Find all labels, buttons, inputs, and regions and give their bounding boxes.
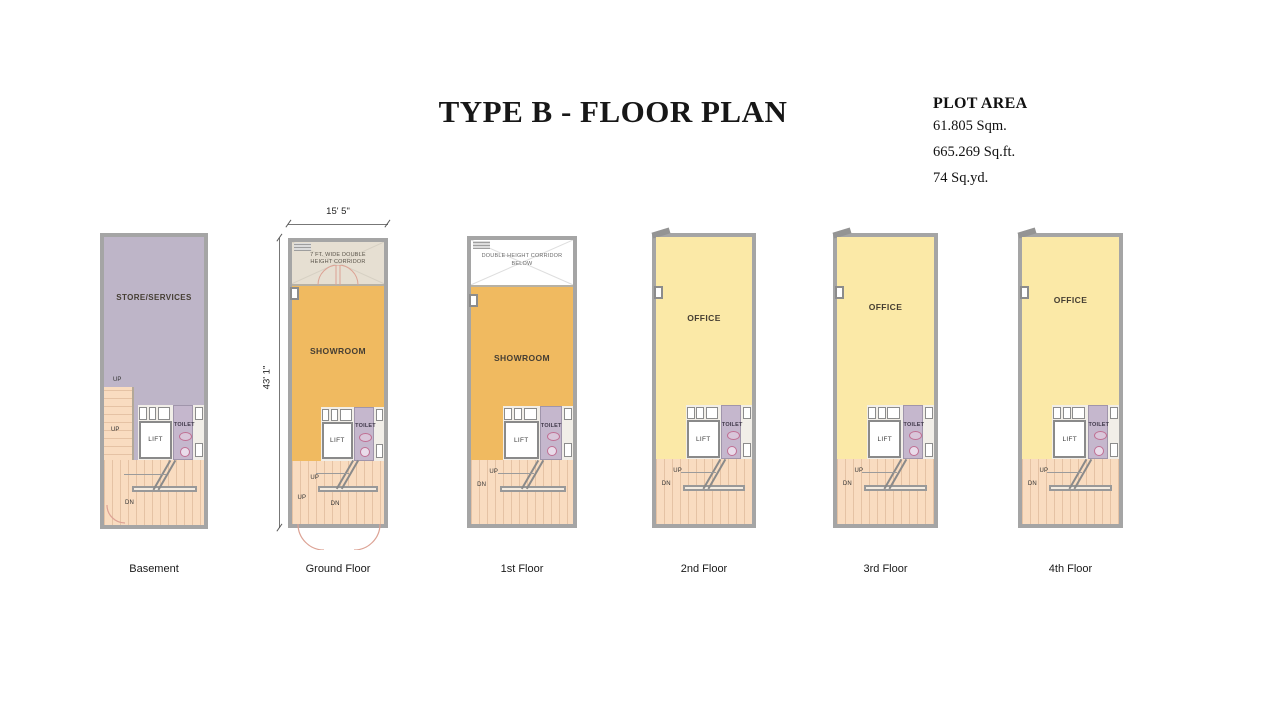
toilet-label: TOILET <box>1089 422 1108 428</box>
stair-landing <box>318 486 378 492</box>
shaft-box <box>149 407 157 420</box>
up-label: UP <box>111 427 119 433</box>
window-marker <box>469 294 478 307</box>
lift-label: LIFT <box>1063 436 1078 443</box>
width-dimension-line <box>288 224 388 225</box>
down-label: DN <box>1028 481 1037 487</box>
toilet-label: TOILET <box>541 423 561 429</box>
shaft-box <box>158 407 171 420</box>
floor-plan-basement: STORE/SERVICES UP UP LIFT TOILET <box>100 233 208 529</box>
void-label: DOUBLE HEIGHT CORRIDOR BELOW <box>481 253 563 268</box>
direction-arrow <box>316 473 349 474</box>
plot-area-sqyd: 74 Sq.yd. <box>933 165 1027 191</box>
service-core: LIFT TOILET <box>503 406 573 460</box>
lift-room: LIFT <box>868 420 901 458</box>
double-height-void: DOUBLE HEIGHT CORRIDOR BELOW <box>471 240 573 287</box>
toilet-room: TOILET <box>1088 405 1109 460</box>
width-dimension-label: 15' 5" <box>288 206 388 217</box>
wc-icon <box>179 432 192 441</box>
store-box <box>376 409 384 421</box>
stair-treads <box>837 459 934 524</box>
stair-treads <box>656 459 752 524</box>
wc-icon <box>909 431 922 440</box>
floor-name-third: 3rd Floor <box>833 563 938 575</box>
stair-landing <box>1049 485 1112 491</box>
direction-arrow <box>1047 472 1082 473</box>
staircase: UP UP DN <box>292 461 384 524</box>
lift-label: LIFT <box>514 437 529 444</box>
service-core: LIFT TOILET <box>321 407 384 461</box>
depth-dimension-line <box>279 238 280 528</box>
shaft-box <box>504 408 512 420</box>
shaft-box <box>1063 407 1071 420</box>
door-arc <box>106 504 126 524</box>
lift-room: LIFT <box>504 421 538 459</box>
direction-arrow <box>862 472 897 473</box>
plot-area-block: PLOT AREA 61.805 Sqm. 665.269 Sq.ft. 74 … <box>933 95 1027 191</box>
double-door-arc <box>316 265 360 285</box>
down-label: DN <box>843 481 852 487</box>
floor-plan-ground: 7 FT. WIDE DOUBLE HEIGHT CORRIDOR SHOWRO… <box>288 238 388 528</box>
service-core: LIFT TOILET <box>138 405 204 460</box>
lift-room: LIFT <box>687 420 719 458</box>
plot-area-sqft: 665.269 Sq.ft. <box>933 139 1027 165</box>
up-label: UP <box>673 468 682 474</box>
shaft-box <box>340 409 352 421</box>
store-box <box>376 444 384 458</box>
store-box <box>925 443 933 457</box>
room-label: SHOWROOM <box>292 346 384 356</box>
window-marker <box>290 287 299 300</box>
wc-icon <box>1094 431 1107 440</box>
shaft-box <box>139 407 147 420</box>
shaft-box <box>524 408 537 420</box>
staircase: UP DN <box>837 459 934 524</box>
store-box <box>1110 407 1118 420</box>
room-label: SHOWROOM <box>471 353 573 363</box>
floor-name-first: 1st Floor <box>467 563 577 575</box>
floor-name-ground: Ground Floor <box>288 563 388 575</box>
store-box <box>564 408 572 420</box>
stair-landing <box>864 485 927 491</box>
direction-arrow <box>124 474 166 475</box>
wc-icon <box>547 432 560 441</box>
wc-icon <box>359 433 372 442</box>
up-label: UP <box>489 469 498 475</box>
service-core: LIFT TOILET <box>1052 405 1119 460</box>
toilet-label: TOILET <box>904 422 923 428</box>
down-label: DN <box>662 481 671 487</box>
room-label: OFFICE <box>837 302 934 312</box>
entrance-corridor: 7 FT. WIDE DOUBLE HEIGHT CORRIDOR <box>292 242 384 286</box>
lift-room: LIFT <box>322 422 353 460</box>
window-marker <box>1020 286 1029 299</box>
floor-plan-first: DOUBLE HEIGHT CORRIDOR BELOW SHOWROOM LI… <box>467 236 577 528</box>
store-box <box>1110 443 1118 457</box>
store-box <box>743 443 751 457</box>
store-box <box>743 407 751 420</box>
toilet-room: TOILET <box>903 405 924 460</box>
stair-treads <box>471 460 573 524</box>
direction-arrow <box>681 472 716 473</box>
up-label: UP <box>854 468 863 474</box>
basin-icon <box>909 446 919 456</box>
shaft-box <box>687 407 695 420</box>
shaft-box <box>322 409 330 421</box>
staircase: UP DN <box>471 460 573 524</box>
shaft-box <box>331 409 339 421</box>
lift-label: LIFT <box>148 436 163 443</box>
shaft-box <box>706 407 719 420</box>
up-label: UP <box>310 475 319 481</box>
basin-icon <box>727 446 737 456</box>
stair-hatch-icon <box>473 241 490 249</box>
stair-landing <box>683 485 745 491</box>
stair-flight <box>104 387 134 463</box>
stair-hatch-icon <box>294 243 311 251</box>
shaft-box <box>1053 407 1061 420</box>
toilet-label: TOILET <box>174 422 192 428</box>
basin-icon <box>547 446 557 456</box>
down-label: DN <box>125 500 134 506</box>
service-core: LIFT TOILET <box>867 405 934 460</box>
room-label: STORE/SERVICES <box>104 293 204 302</box>
entry-door-arcs <box>292 524 392 550</box>
dimension-tick <box>384 220 390 228</box>
staircase: UP DN <box>656 459 752 524</box>
shaft-box <box>514 408 522 420</box>
shaft-box <box>1072 407 1085 420</box>
shaft-box <box>696 407 704 420</box>
floor-plan-fourth: OFFICE LIFT TOILET UP DN <box>1018 233 1123 528</box>
down-label: DN <box>477 482 486 488</box>
toilet-label: TOILET <box>722 422 741 428</box>
store-box <box>564 443 572 457</box>
lift-label: LIFT <box>330 437 345 444</box>
floor-plan-sheet: TYPE B - FLOOR PLAN PLOT AREA 61.805 Sqm… <box>0 0 1280 720</box>
page-title: TYPE B - FLOOR PLAN <box>418 94 808 130</box>
toilet-label: TOILET <box>355 423 373 429</box>
service-core: LIFT TOILET <box>686 405 752 460</box>
lift-room: LIFT <box>1053 420 1086 458</box>
depth-dimension-label: 43' 1" <box>262 358 273 398</box>
up-label: UP <box>1039 468 1048 474</box>
room-label: OFFICE <box>1022 295 1119 305</box>
staircase: DN <box>104 460 204 525</box>
basin-icon <box>180 447 190 457</box>
plot-area-sqm: 61.805 Sqm. <box>933 113 1027 139</box>
basin-icon <box>360 447 370 457</box>
toilet-room: TOILET <box>173 405 193 460</box>
store-box <box>925 407 933 420</box>
stair-landing <box>500 486 566 492</box>
staircase: UP DN <box>1022 459 1119 524</box>
direction-arrow <box>498 473 535 474</box>
floor-plan-second: OFFICE LIFT TOILET UP DN <box>652 233 756 528</box>
stair-treads <box>1022 459 1119 524</box>
window-marker <box>654 286 663 299</box>
plot-area-heading: PLOT AREA <box>933 95 1027 113</box>
floor-plan-third: OFFICE LIFT TOILET UP DN <box>833 233 938 528</box>
wc-icon <box>727 431 740 440</box>
stair-landing <box>132 486 197 492</box>
floor-name-fourth: 4th Floor <box>1018 563 1123 575</box>
lift-label: LIFT <box>878 436 893 443</box>
basin-icon <box>1094 446 1104 456</box>
store-box <box>195 443 203 457</box>
room-label: OFFICE <box>656 313 752 323</box>
stair-treads <box>292 461 384 524</box>
lift-room: LIFT <box>139 421 171 459</box>
toilet-room: TOILET <box>354 407 374 461</box>
dimension-tick <box>276 524 282 532</box>
lift-label: LIFT <box>696 436 711 443</box>
window-marker <box>835 286 844 299</box>
floor-name-second: 2nd Floor <box>652 563 756 575</box>
floor-name-basement: Basement <box>100 563 208 575</box>
shaft-box <box>878 407 886 420</box>
toilet-room: TOILET <box>721 405 742 460</box>
toilet-room: TOILET <box>540 406 562 460</box>
up-label: UP <box>298 495 307 501</box>
shaft-box <box>887 407 900 420</box>
shaft-box <box>868 407 876 420</box>
store-box <box>195 407 203 420</box>
down-label: DN <box>331 501 340 507</box>
up-label: UP <box>113 377 121 383</box>
